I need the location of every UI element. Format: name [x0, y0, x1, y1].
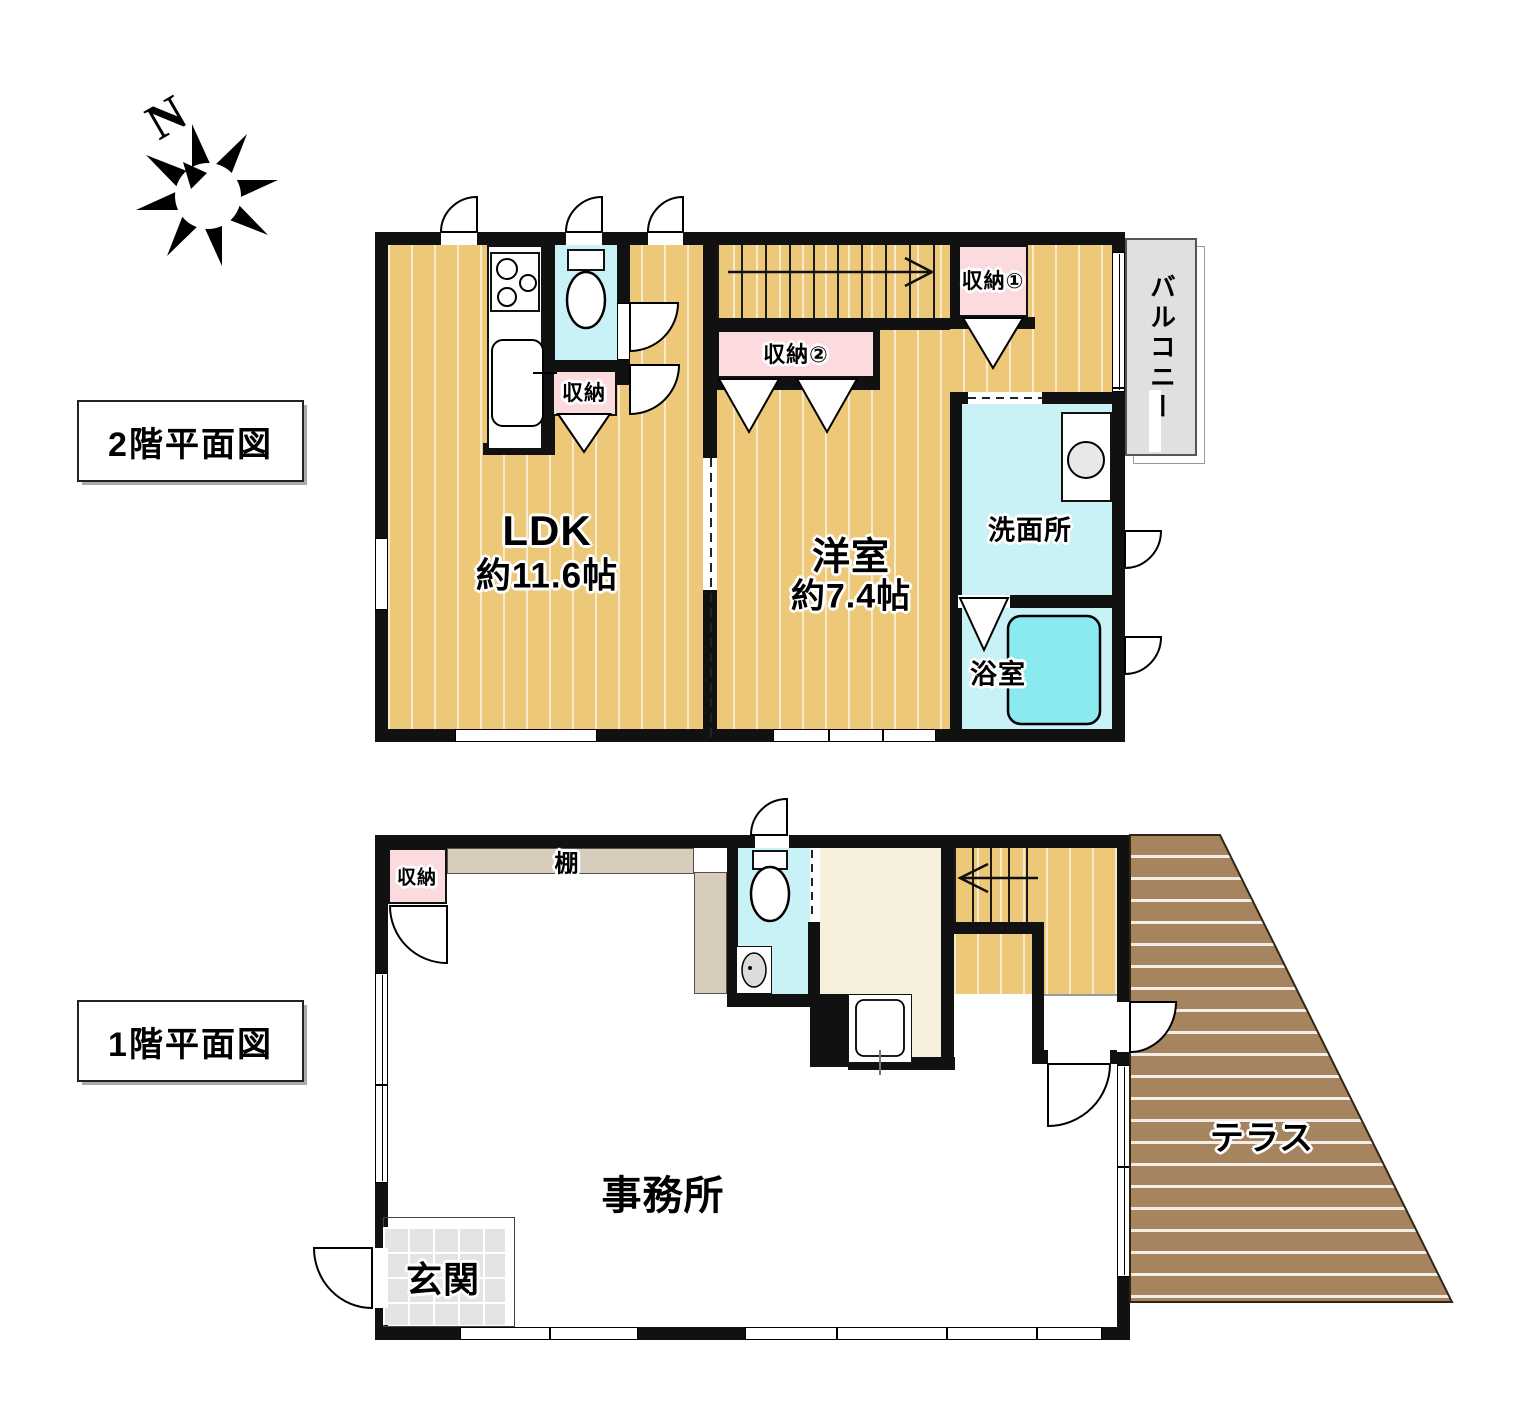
wall-toilet-bottom-1f	[727, 994, 820, 1007]
floor2-title: 2階平面図	[77, 400, 304, 482]
window-line	[1119, 254, 1120, 390]
toilet-tank-2f	[567, 249, 605, 271]
window-tick	[946, 1328, 948, 1339]
door-swing-entrance	[314, 1248, 372, 1308]
stairs-1f	[954, 848, 1042, 922]
office-label: 事務所	[602, 1163, 725, 1221]
sink-unit-1f	[848, 994, 912, 1063]
window-tick	[828, 730, 830, 741]
closet-2f-label: 収納	[562, 377, 606, 407]
window-tick	[836, 1328, 838, 1339]
window-bottom-1f-b	[745, 1327, 1102, 1340]
wall-column-1f	[810, 994, 848, 1067]
toilet-door-leaf-2f	[617, 303, 630, 360]
window-tick	[1118, 1166, 1129, 1168]
window-ldk-bottom	[455, 729, 597, 742]
sliding-door-gap-ldk	[703, 458, 717, 590]
door-swing-bathroom	[1125, 637, 1161, 674]
window-line	[382, 975, 383, 1181]
window-tick	[376, 1084, 387, 1086]
wall-toilet-right-1f	[808, 922, 820, 994]
terrace-deck	[1130, 835, 1452, 1302]
door-swing-washroom	[1125, 531, 1161, 568]
window-tick	[549, 1328, 551, 1339]
wall-kitchen-closet	[543, 245, 555, 450]
window-line	[1124, 1067, 1125, 1275]
wall-landing-left	[1032, 934, 1044, 1050]
ldk-size-label: 約11.6帖	[476, 548, 618, 599]
wall-closet1-bottom	[950, 317, 1035, 329]
entrance-label: 玄関	[406, 1251, 480, 1303]
vent-gap-b	[566, 232, 602, 245]
washing-machine-box	[1061, 412, 1112, 502]
stairs-2f	[717, 245, 950, 318]
terrace-label: テラス	[1210, 1111, 1314, 1160]
floorplan-page: { "compass": { "label": "N" }, "floor2":…	[0, 0, 1518, 1405]
entrance-door-gap	[375, 1248, 388, 1308]
vent-door-icon	[648, 197, 683, 232]
wall-closet2-bottom	[703, 378, 880, 390]
wall-stairs-bottom-1f	[941, 922, 1044, 934]
hand-sink-1f	[736, 946, 772, 994]
vent-gap-a	[441, 232, 477, 245]
washroom-sliding-gap	[968, 392, 1042, 404]
shelf-return	[694, 872, 727, 994]
wall-wet-left	[950, 392, 962, 729]
washroom-label: 洗面所	[988, 509, 1072, 548]
window-tick	[882, 730, 884, 741]
vent-door-icon	[441, 197, 477, 232]
wall-kitchenette-right	[941, 848, 954, 1070]
north-label: N	[136, 83, 196, 151]
vent-door-icon	[566, 197, 602, 232]
window-right-1f	[1117, 1065, 1130, 1277]
bathroom-label: 浴室	[970, 653, 1026, 692]
window-yoshitsu-bottom	[773, 729, 936, 742]
wall-vest-stub-left	[1032, 1050, 1048, 1064]
balcony-door-window	[1112, 252, 1125, 392]
wall-toilet-right-upper	[617, 245, 630, 303]
terrace-door-gap	[1117, 1002, 1130, 1052]
window-tick	[1113, 387, 1124, 389]
window-bottom-1f-a	[460, 1327, 638, 1340]
western-room-size-label: 約7.4帖	[791, 569, 911, 618]
closet-1f-label: 収納	[397, 863, 437, 890]
compass-icon	[136, 124, 278, 266]
balcony-label: バルコニー	[1144, 273, 1181, 423]
vent-gap-c	[648, 232, 683, 245]
floor1-title: 1階平面図	[77, 1000, 304, 1082]
toilet-tank-1f	[752, 850, 788, 870]
bath-door-gap	[958, 595, 1010, 608]
wall-stairs-bottom-2f	[703, 318, 950, 330]
door-swing-terrace	[1130, 1002, 1176, 1052]
stove	[490, 252, 540, 312]
window-ldk-left	[375, 538, 388, 610]
vestibule	[1044, 994, 1117, 1056]
closet2-label: 収納②	[763, 337, 829, 369]
shelf-label: 棚	[555, 844, 580, 879]
vent-door-icon	[751, 799, 787, 835]
window-tick	[1036, 1328, 1038, 1339]
wall-vest-stub-right	[1110, 1050, 1117, 1064]
closet1-label: 収納①	[962, 265, 1025, 295]
vent-gap-1f	[755, 835, 789, 848]
window-left-1f	[375, 973, 388, 1183]
